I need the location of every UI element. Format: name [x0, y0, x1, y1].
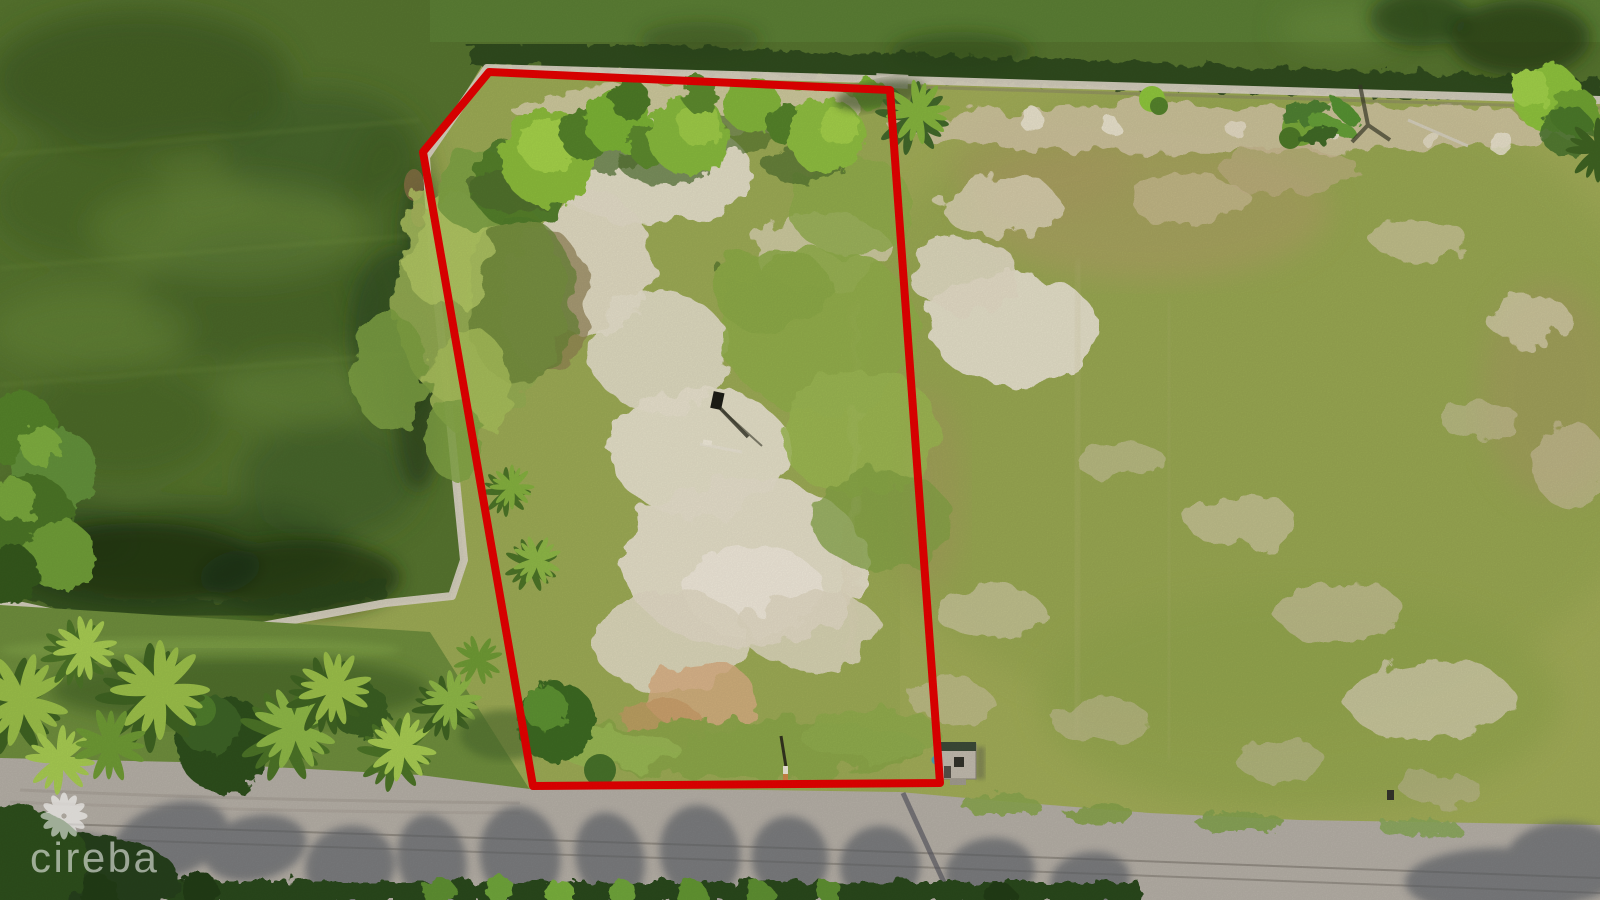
- aerial-photo: cireba: [0, 0, 1600, 900]
- watermark-text: cireba: [30, 834, 159, 881]
- aerial-photo-svg: cireba: [0, 0, 1600, 900]
- photo-grain-overlay: [0, 0, 1600, 900]
